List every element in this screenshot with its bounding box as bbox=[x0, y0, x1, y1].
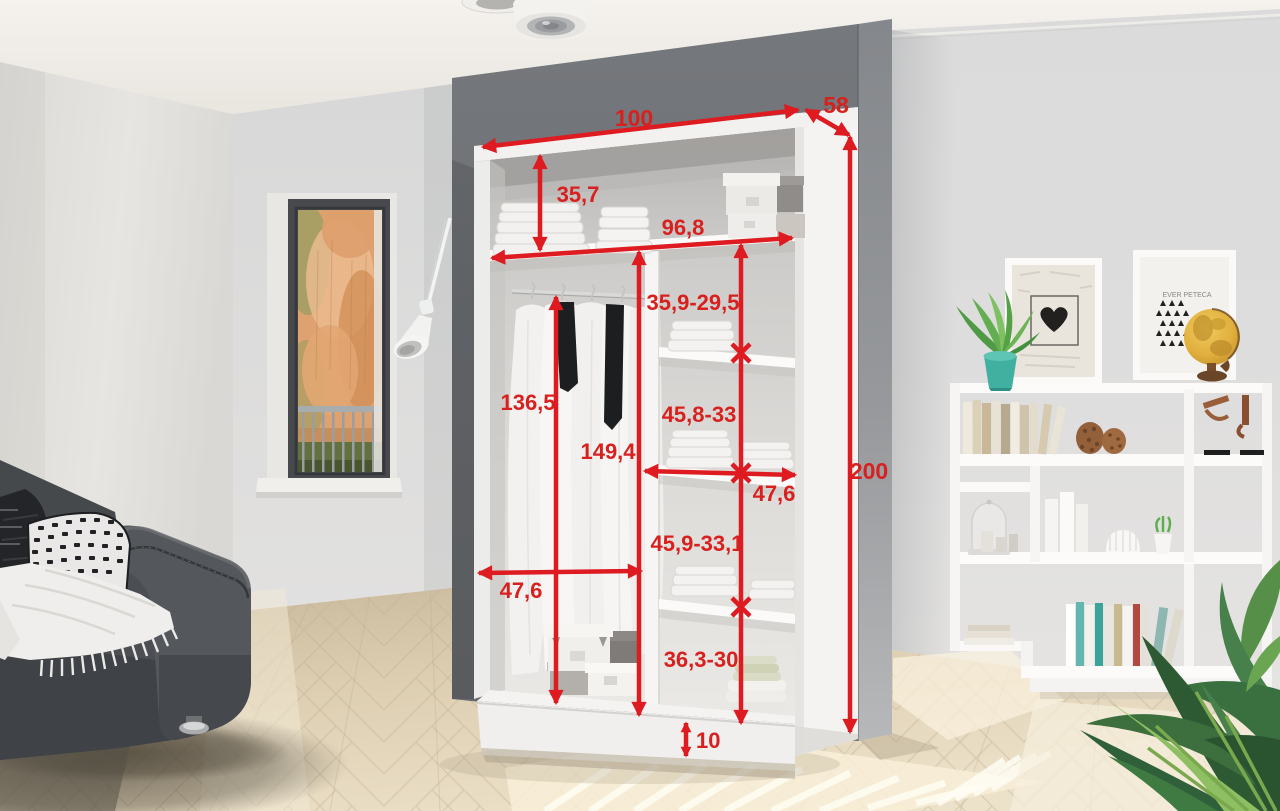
svg-text:200: 200 bbox=[850, 458, 888, 484]
svg-text:36,3-30: 36,3-30 bbox=[664, 647, 739, 672]
svg-text:10: 10 bbox=[696, 728, 720, 753]
svg-text:47,6: 47,6 bbox=[753, 481, 796, 506]
svg-text:96,8: 96,8 bbox=[662, 215, 705, 240]
svg-text:35,7: 35,7 bbox=[557, 182, 600, 207]
svg-text:136,5: 136,5 bbox=[500, 390, 555, 415]
svg-text:100: 100 bbox=[615, 105, 653, 131]
svg-text:149,4: 149,4 bbox=[580, 439, 636, 464]
svg-text:45,9-33,1: 45,9-33,1 bbox=[651, 531, 744, 556]
svg-text:45,8-33: 45,8-33 bbox=[662, 402, 737, 427]
svg-text:35,9-29,5: 35,9-29,5 bbox=[647, 290, 740, 315]
svg-text:EVER PETECA: EVER PETECA bbox=[1162, 292, 1211, 299]
svg-text:47,6: 47,6 bbox=[500, 578, 543, 603]
svg-text:58: 58 bbox=[823, 92, 849, 118]
